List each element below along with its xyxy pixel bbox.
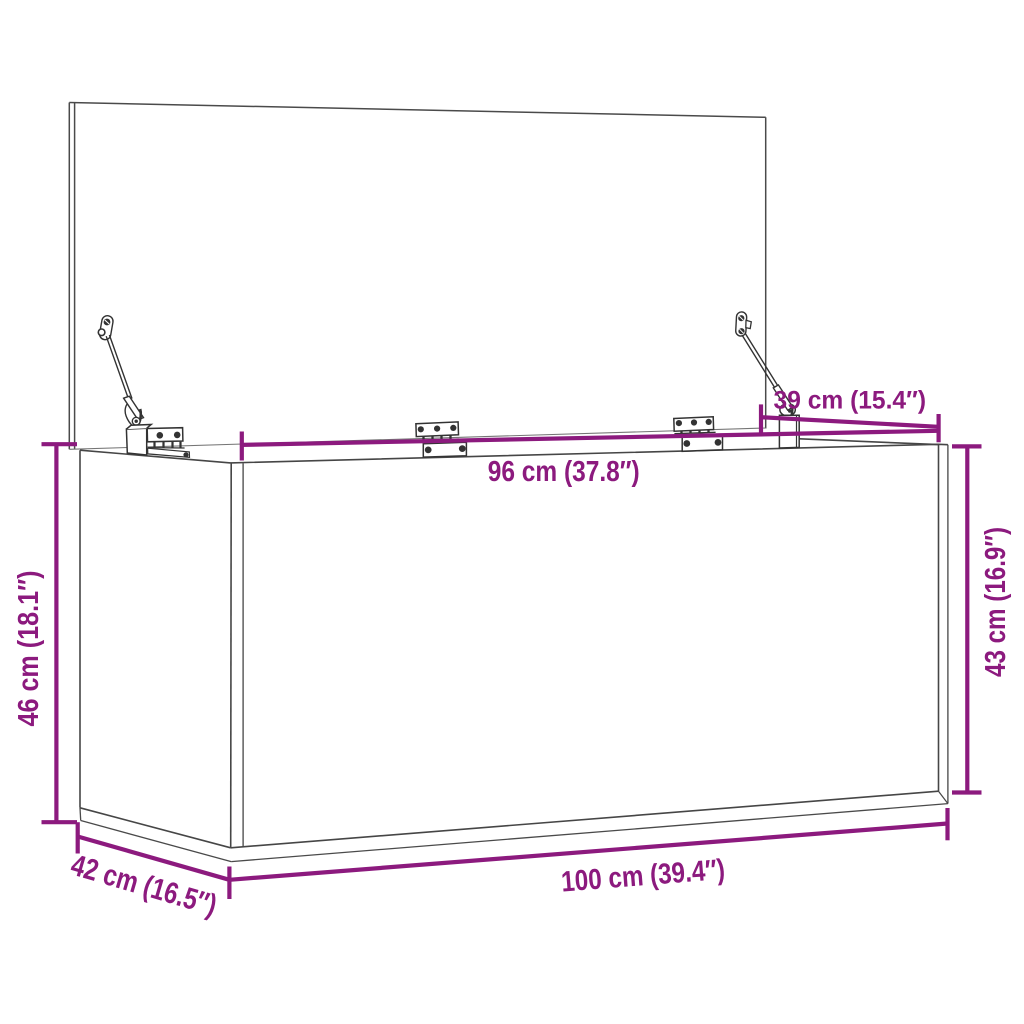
svg-text:96 cm (37.8″): 96 cm (37.8″)	[488, 456, 640, 488]
svg-text:42 cm (16.5″): 42 cm (16.5″)	[67, 849, 220, 923]
svg-text:43 cm (16.9″): 43 cm (16.9″)	[980, 527, 1012, 677]
svg-text:100 cm (39.4″): 100 cm (39.4″)	[560, 854, 726, 899]
svg-text:46 cm (18.1″): 46 cm (18.1″)	[13, 571, 45, 727]
svg-text:39 cm (15.4″): 39 cm (15.4″)	[774, 387, 927, 415]
